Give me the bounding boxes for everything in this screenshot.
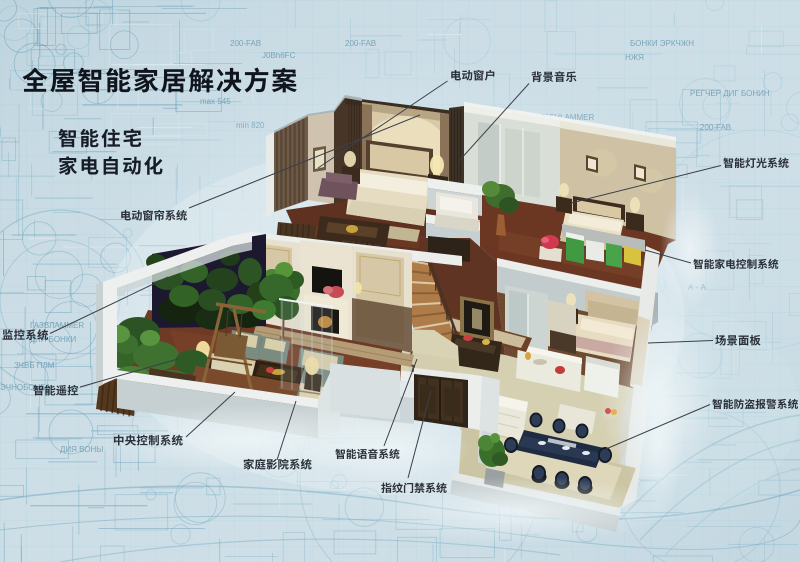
svg-text:200-FAB: 200-FAB [345,39,376,48]
svg-text:НЖЯ: НЖЯ [625,53,644,62]
svg-text:РЕГЧЕР ДИГ БОНИН: РЕГЧЕР ДИГ БОНИН [690,89,770,98]
svg-text:200-FAB: 200-FAB [230,39,261,48]
svg-text:БОНКИ ЭРКЧЖН: БОНКИ ЭРКЧЖН [630,39,694,48]
svg-text:ЗЧВБ ПЛМ: ЗЧВБ ПЛМ [14,361,55,370]
svg-text:ДЛЯ БОНКИ: ДЛЯ БОНКИ [30,335,76,344]
svg-text:J0Bh6FC: J0Bh6FC [262,51,296,60]
svg-text:200-FAB: 200-FAB [700,123,731,132]
svg-text:ГАЗВЛАММЕR: ГАЗВЛАММЕR [30,321,84,330]
svg-text:ЭЧНОБОНБА: ЭЧНОБОНБА [0,383,51,392]
